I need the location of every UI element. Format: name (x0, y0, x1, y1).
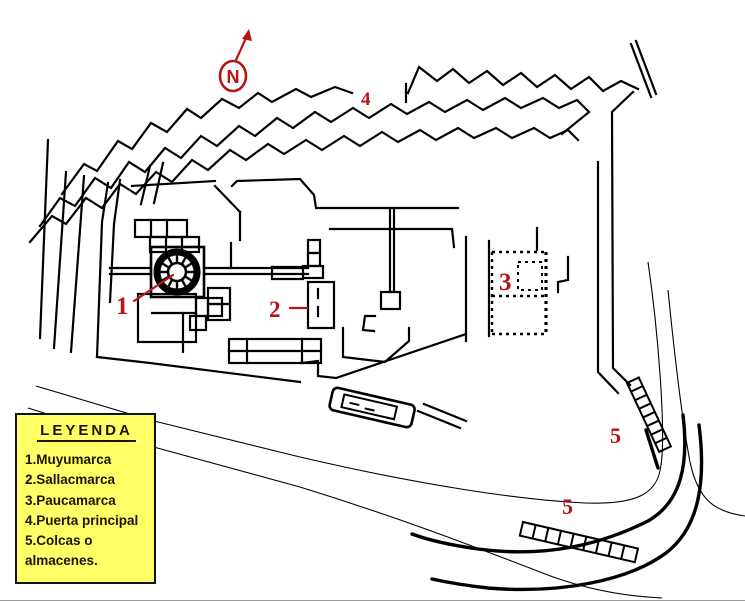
long-hall (329, 387, 416, 428)
marker-puerta-principal: 4 (361, 89, 371, 110)
main-complex (97, 179, 568, 382)
legend-item-paucamarca: 3.Paucamarca (25, 491, 150, 511)
round-tower (151, 247, 204, 297)
legend-box: LEYENDA 1.Muyumarca 2.Sallacmarca 3.Pauc… (15, 413, 156, 584)
colca-ladder-south (520, 522, 638, 562)
zigzag-walls (30, 67, 638, 242)
legend-title: LEYENDA (37, 422, 136, 442)
marker-sallacmarca: 2 (269, 297, 281, 322)
legend-item-muyumarca: 1.Muyumarca (25, 450, 150, 470)
site-plan: N 1 2 3 4 5 5 LEYENDA 1.Muyumarca 2.Sall… (0, 0, 745, 601)
north-arrow: N (220, 29, 252, 91)
sallacmarca-room (308, 282, 334, 328)
hall-side-walls (418, 404, 466, 428)
legend-item-sallacmarca: 2.Sallacmarca (25, 470, 150, 490)
marker-colcas-south: 5 (562, 494, 573, 519)
legend-item-colcas: 5.Colcas o almacenes. (25, 531, 150, 572)
marker-muyumarca: 1 (116, 293, 129, 320)
marker-colcas-northeast: 5 (610, 423, 621, 448)
marker-paucamarca: 3 (499, 269, 512, 296)
legend-item-puerta-principal: 4.Puerta principal (25, 511, 150, 531)
north-arrowhead-icon (242, 29, 252, 41)
north-label: N (227, 67, 240, 87)
